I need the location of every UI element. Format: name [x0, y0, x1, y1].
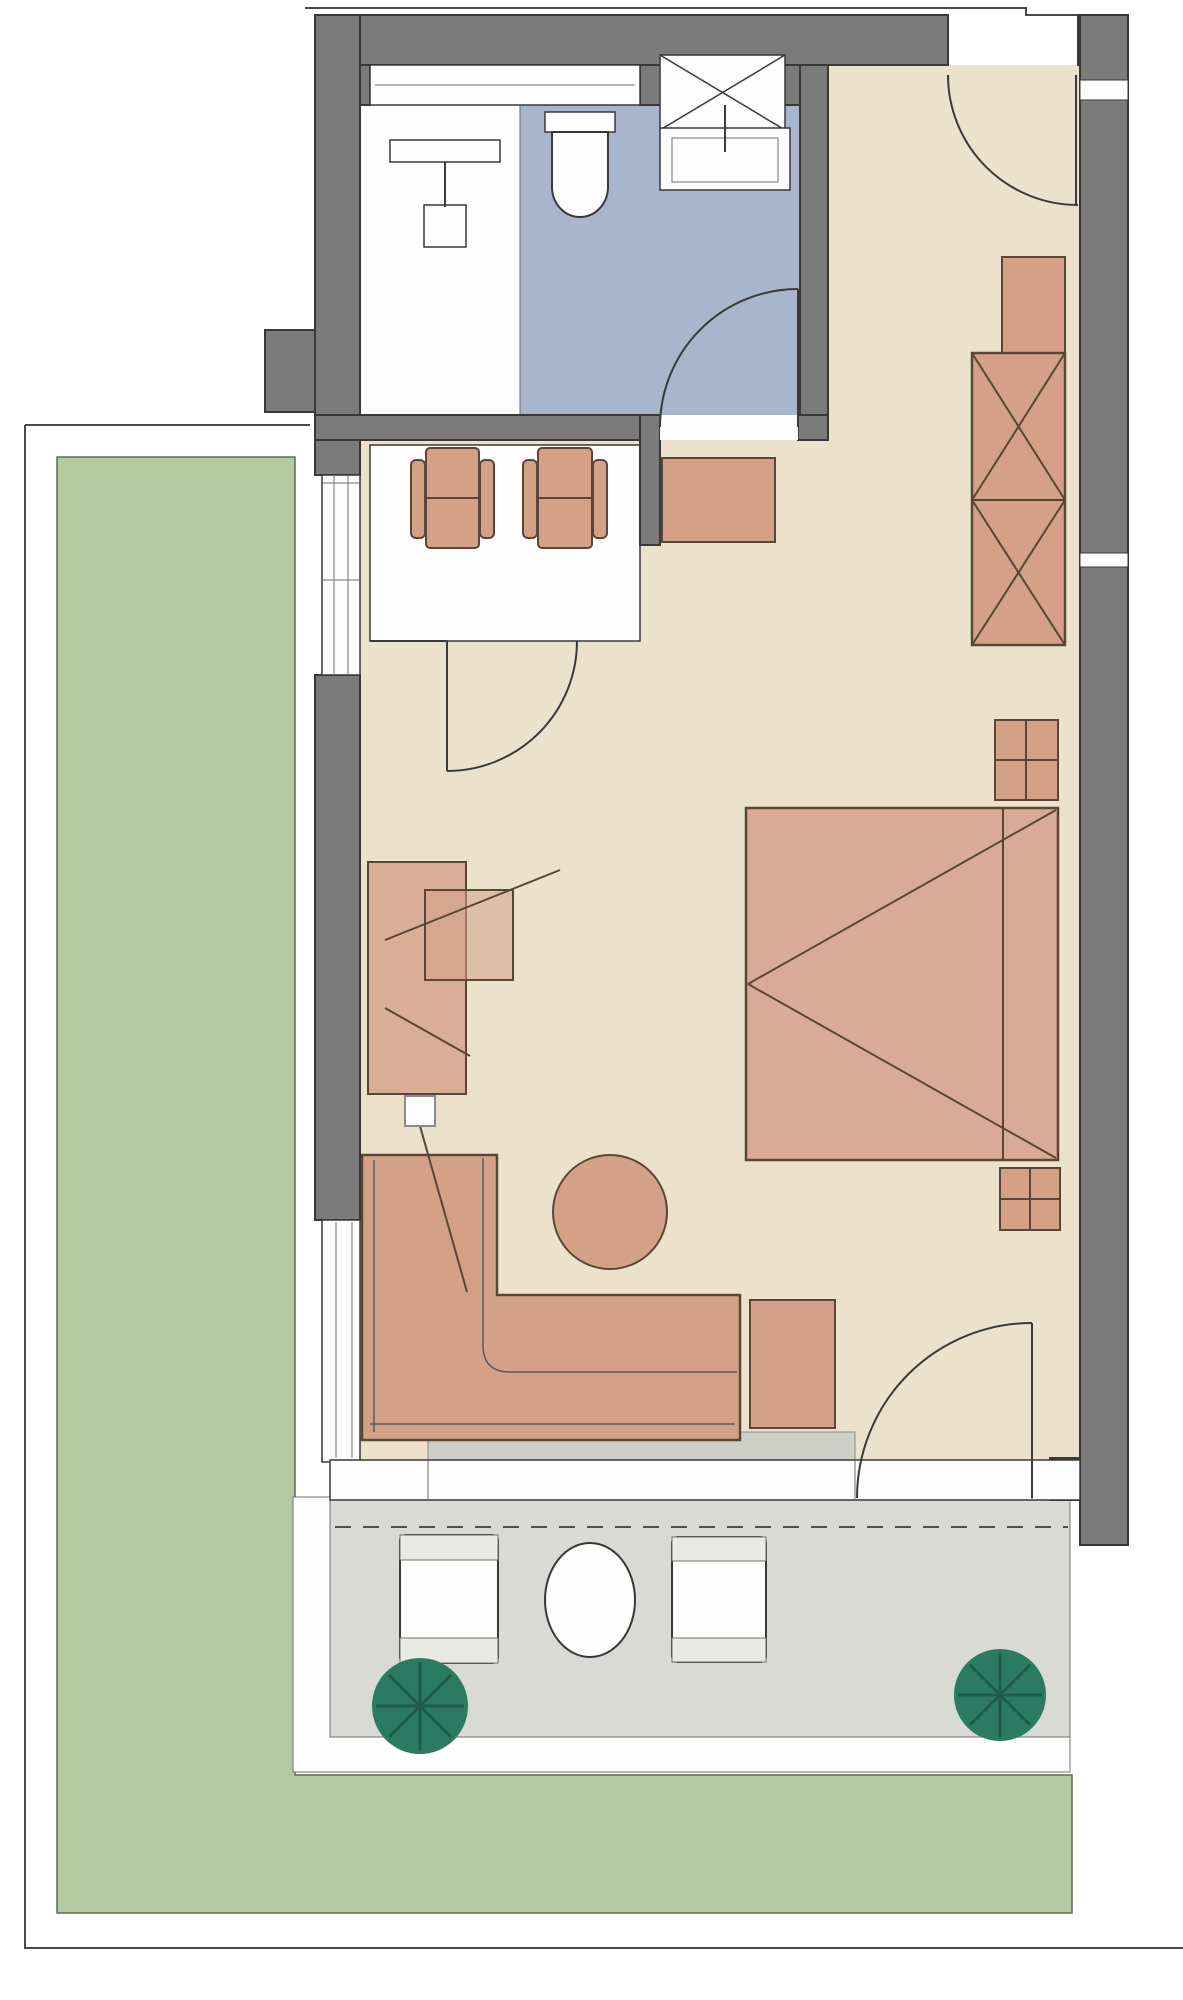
- dining-chair-2-arm-right: [593, 460, 607, 538]
- wall-joint-mid: [1080, 553, 1128, 567]
- toilet-tank: [545, 112, 615, 132]
- wall-bathroom-bottom: [315, 415, 640, 440]
- plant-right: [954, 1649, 1046, 1741]
- wall-pier: [265, 330, 315, 412]
- outlet-symbol: [405, 1096, 435, 1126]
- window-left: [322, 475, 360, 675]
- wall-bathroom-stub: [640, 415, 660, 545]
- coffee-table: [553, 1155, 667, 1269]
- dining-chair-1-arm-left: [411, 460, 425, 538]
- terrace-chair-right-back: [672, 1537, 766, 1561]
- wall-left-lower: [315, 675, 360, 1220]
- double-bed: [746, 808, 1058, 1160]
- glass-left: [322, 1220, 360, 1462]
- shower-head: [424, 205, 466, 247]
- wall-top-left: [315, 15, 948, 65]
- tall-cabinet: [1002, 257, 1065, 353]
- wall-bathroom-right: [800, 65, 828, 440]
- terrace-chair-right-front: [672, 1638, 766, 1662]
- floorplan-svg: [0, 0, 1183, 2000]
- desk-chair: [425, 890, 513, 980]
- ottoman: [750, 1300, 835, 1428]
- shower-bar: [390, 140, 500, 162]
- bathroom-door-opening: [660, 415, 798, 440]
- dining-chair-2-arm-left: [523, 460, 537, 538]
- dining-chair-1-arm-right: [480, 460, 494, 538]
- wall-joint-top: [1080, 80, 1128, 100]
- wall-right: [1080, 15, 1128, 1545]
- glass-bottom: [330, 1460, 1080, 1500]
- entry-cabinet: [662, 458, 775, 542]
- floorplan-canvas: [0, 0, 1183, 2000]
- wall-left-upper: [315, 15, 360, 475]
- plant-left: [372, 1658, 468, 1754]
- wall-bathroom-bottom-right: [798, 415, 828, 440]
- terrace-chair-left-back: [400, 1535, 498, 1560]
- terrace-table: [545, 1543, 635, 1657]
- toilet-bowl: [552, 132, 608, 217]
